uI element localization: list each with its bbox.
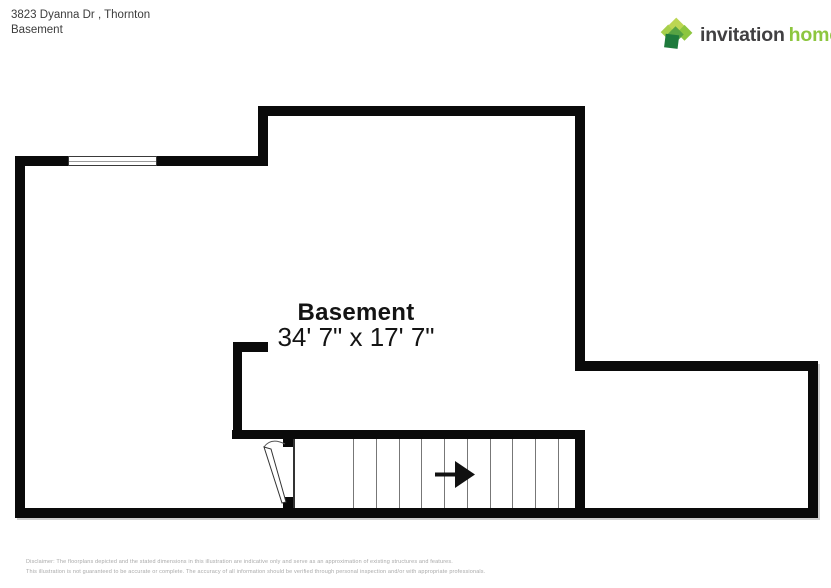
right-arrow-icon [430, 455, 480, 495]
room-label-block: Basement 34' 7" x 17' 7" [246, 300, 466, 350]
door-arc [264, 441, 285, 447]
wall-shadow-right [818, 364, 820, 518]
logo-word-homes: homes [789, 24, 831, 46]
disclaimer-line1: Disclaimer: The floorplans depicted and … [26, 558, 546, 568]
stair-tread [399, 439, 400, 508]
stair-tread [512, 439, 513, 508]
wall-stair-right [575, 430, 585, 508]
disclaimer: Disclaimer: The floorplans depicted and … [26, 558, 546, 578]
door-swing-symbol [245, 420, 315, 520]
wall-outer-right [808, 361, 818, 518]
stair-tread [353, 439, 354, 508]
disclaimer-line2: This illustration is not guaranteed to b… [26, 568, 546, 578]
stair-tread [376, 439, 377, 508]
logo-word-invitation: invitation [700, 24, 785, 46]
floor-name: Basement [11, 23, 150, 38]
stair-tread [558, 439, 559, 508]
room-dimensions: 34' 7" x 17' 7" [246, 325, 466, 350]
window-glass-line [69, 161, 156, 162]
floorplan-page: 3823 Dyanna Dr , Thornton Basement invit… [0, 0, 831, 588]
window-symbol [68, 156, 157, 166]
stair-left-edge [293, 439, 295, 508]
wall-right-upper [575, 106, 585, 371]
wall-interior-vertical [233, 342, 242, 439]
wall-outer-bottom [15, 508, 818, 518]
door-leaf [264, 447, 286, 503]
invitation-homes-diamonds-icon [660, 17, 693, 53]
wall-step-right [575, 361, 818, 371]
stair-tread [421, 439, 422, 508]
wall-shadow-bottom [17, 518, 820, 520]
invitation-homes-logo: invitationhomes' [660, 17, 831, 53]
property-address: 3823 Dyanna Dr , Thornton [11, 8, 150, 23]
logo-wordmark: invitationhomes' [700, 24, 831, 47]
wall-outer-left [15, 156, 25, 518]
wall-top-upper [258, 106, 585, 116]
stair-tread [535, 439, 536, 508]
header: 3823 Dyanna Dr , Thornton Basement [11, 8, 150, 37]
stair-tread [490, 439, 491, 508]
